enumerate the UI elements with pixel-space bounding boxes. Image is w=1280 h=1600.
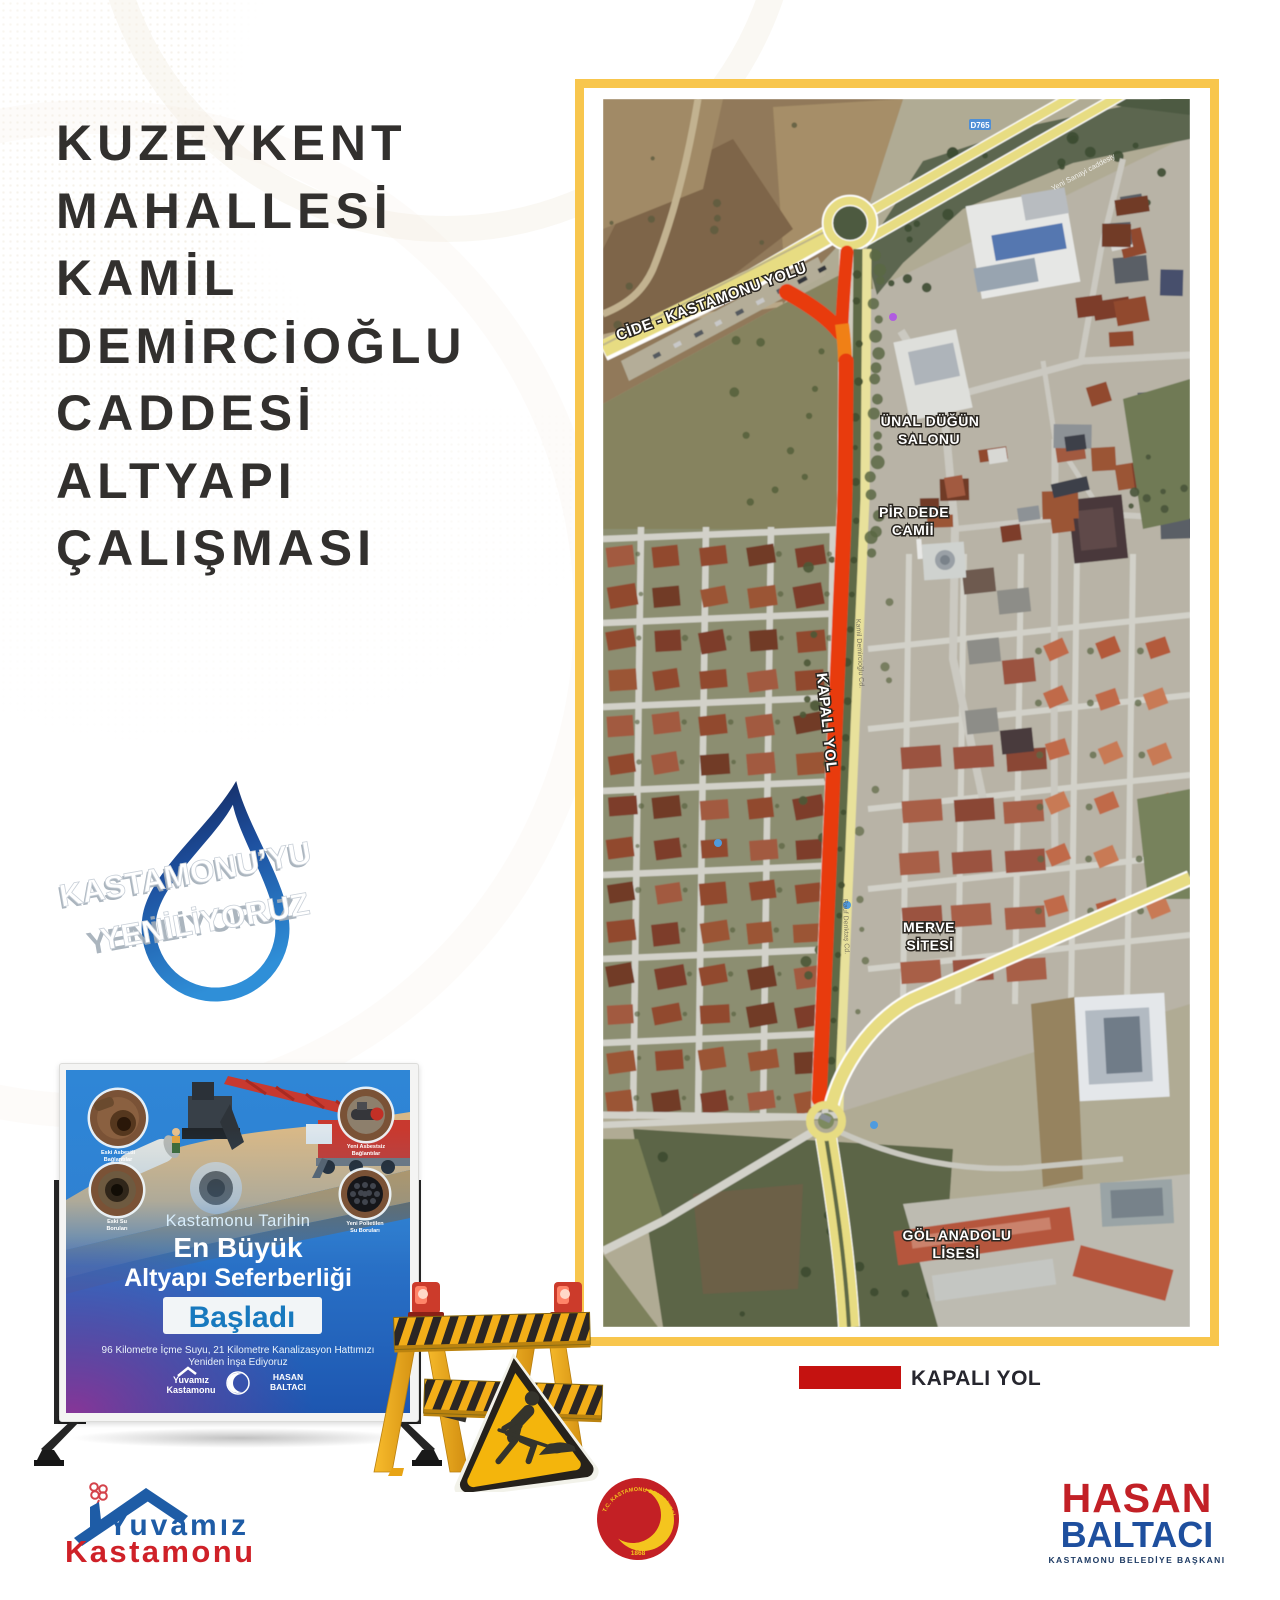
svg-text:SİTESİ: SİTESİ	[906, 937, 953, 953]
svg-text:Boruları: Boruları	[106, 1226, 128, 1232]
svg-text:Altyapı Seferberliği: Altyapı Seferberliği	[124, 1264, 352, 1292]
svg-text:Yuvamız: Yuvamız	[173, 1375, 210, 1385]
svg-text:MERVE: MERVE	[903, 919, 955, 935]
svg-text:Kastamonu: Kastamonu	[166, 1385, 215, 1395]
svg-text:96 Kilometre İçme Suyu, 21 Kil: 96 Kilometre İçme Suyu, 21 Kilometre Kan…	[102, 1343, 375, 1356]
svg-text:CAMİİ: CAMİİ	[892, 522, 934, 538]
svg-text:1868: 1868	[631, 1550, 646, 1557]
svg-text:Yeni Polietilen: Yeni Polietilen	[346, 1221, 384, 1227]
svg-text:Bağlantılar: Bağlantılar	[104, 1157, 133, 1163]
svg-text:Kastamonu Tarihin: Kastamonu Tarihin	[166, 1212, 311, 1230]
svg-text:LİSESİ: LİSESİ	[932, 1245, 979, 1261]
svg-text:HASAN: HASAN	[273, 1372, 303, 1382]
svg-text:Eski Su: Eski Su	[107, 1219, 127, 1225]
svg-text:Eski Asbestli: Eski Asbestli	[101, 1150, 136, 1156]
svg-text:Yeniden İnşa Ediyoruz: Yeniden İnşa Ediyoruz	[188, 1355, 287, 1368]
svg-text:SALONU: SALONU	[898, 431, 960, 447]
svg-text:BALTACI: BALTACI	[270, 1382, 306, 1392]
svg-text:Başladı: Başladı	[189, 1301, 296, 1334]
svg-text:ÜNAL DÜĞÜN: ÜNAL DÜĞÜN	[881, 412, 980, 429]
svg-text:Bağlantılar: Bağlantılar	[352, 1151, 381, 1157]
svg-text:Yeni Asbestsiz: Yeni Asbestsiz	[347, 1144, 386, 1150]
svg-text:D765: D765	[970, 121, 990, 130]
svg-text:GÖL ANADOLU: GÖL ANADOLU	[903, 1227, 1012, 1243]
svg-text:Su Boruları: Su Boruları	[350, 1228, 380, 1234]
svg-text:PİR DEDE: PİR DEDE	[879, 504, 949, 520]
svg-text:En Büyük: En Büyük	[173, 1232, 303, 1263]
svg-text:Kastamonu: Kastamonu	[65, 1534, 255, 1569]
